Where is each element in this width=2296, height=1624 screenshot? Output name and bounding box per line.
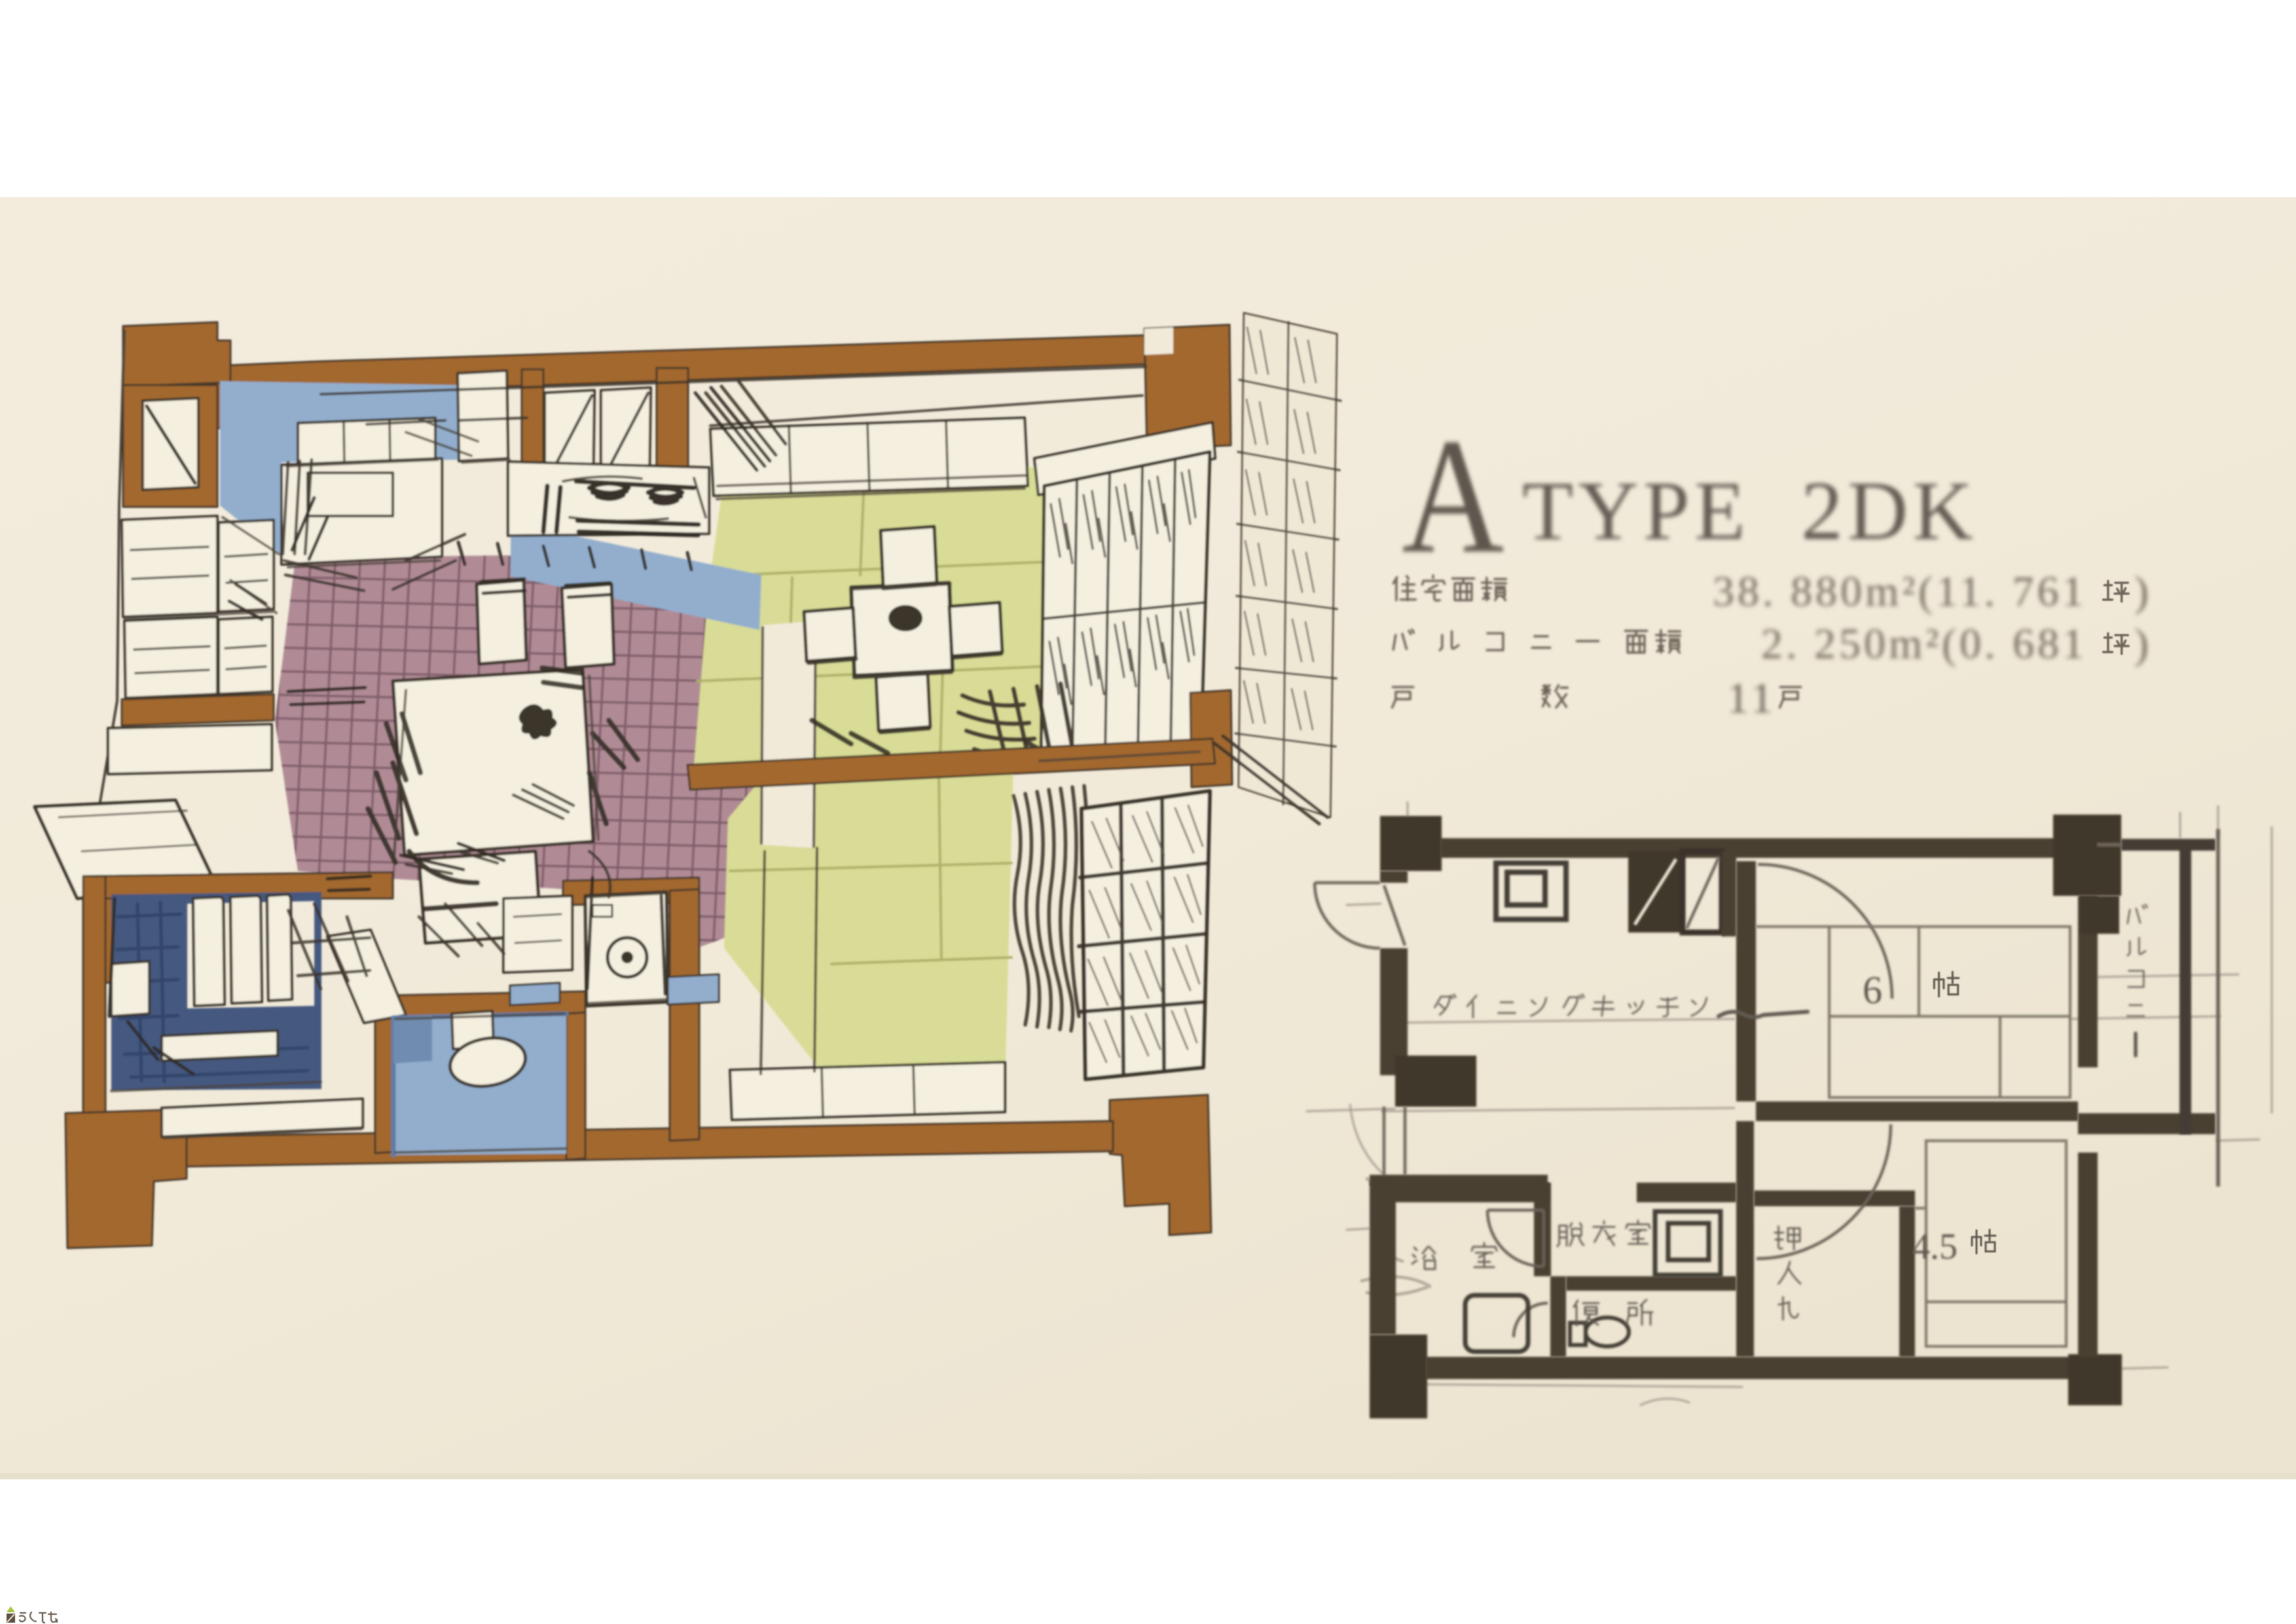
svg-text:A: A	[1402, 405, 1504, 587]
svg-text:TYPE 2DK: TYPE 2DK	[1522, 464, 1978, 557]
svg-text:6: 6	[1863, 969, 1882, 1012]
svg-text:11: 11	[1727, 674, 1777, 722]
svg-text:2. 250m²(0. 681: 2. 250m²(0. 681	[1761, 620, 2087, 668]
svg-text:38. 880m²(11. 761: 38. 880m²(11. 761	[1713, 568, 2087, 616]
svg-text:): )	[2134, 620, 2149, 668]
svg-text:4.5: 4.5	[1912, 1227, 1958, 1267]
svg-text:): )	[2134, 568, 2149, 616]
